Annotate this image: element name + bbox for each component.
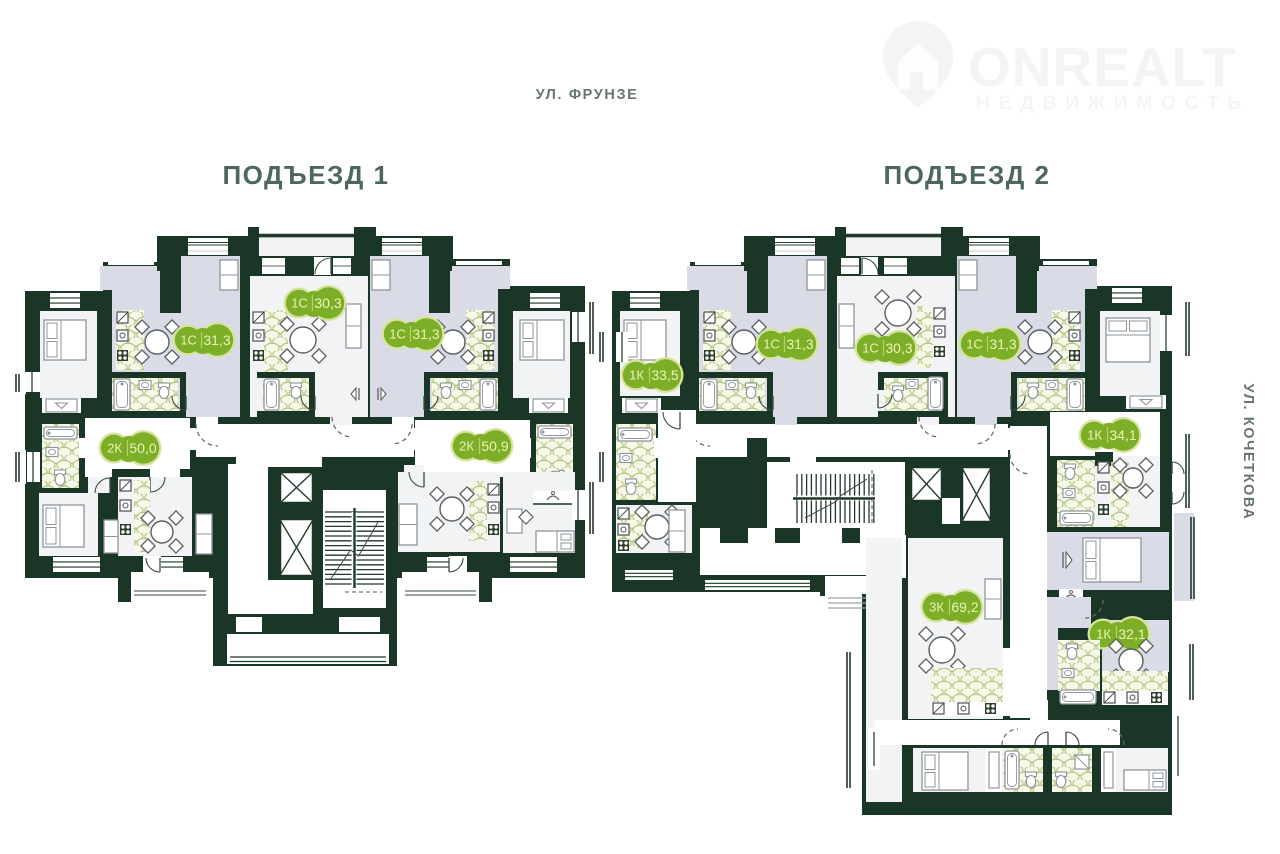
svg-text:3К: 3К: [929, 600, 944, 615]
svg-text:1С: 1С: [966, 337, 983, 352]
svg-text:31,3: 31,3: [412, 326, 439, 342]
svg-text:69,2: 69,2: [951, 599, 978, 615]
svg-text:1С: 1С: [763, 337, 780, 352]
svg-text:34,1: 34,1: [1109, 427, 1136, 443]
svg-text:НЕДВИЖИМОСТЬ: НЕДВИЖИМОСТЬ: [976, 92, 1250, 114]
svg-text:1С: 1С: [180, 333, 197, 348]
svg-text:ПОДЪЕЗД 2: ПОДЪЕЗД 2: [883, 160, 1050, 190]
svg-text:1С: 1С: [291, 296, 308, 311]
svg-text:31,3: 31,3: [203, 332, 230, 348]
svg-text:2К: 2К: [459, 439, 474, 454]
svg-text:ПОДЪЕЗД 1: ПОДЪЕЗД 1: [222, 160, 389, 190]
svg-text:30,3: 30,3: [885, 340, 912, 356]
svg-text:1С: 1С: [389, 327, 406, 342]
svg-text:31,3: 31,3: [989, 336, 1016, 352]
svg-text:50,0: 50,0: [129, 440, 156, 456]
svg-text:УЛ. ФРУНЗЕ: УЛ. ФРУНЗЕ: [536, 87, 639, 103]
svg-text:1К: 1К: [1096, 627, 1111, 642]
svg-text:30,3: 30,3: [314, 295, 341, 311]
svg-text:1К: 1К: [629, 368, 644, 383]
svg-text:УЛ. КОЧЕТКОВА: УЛ. КОЧЕТКОВА: [1240, 384, 1256, 521]
svg-text:1С: 1С: [862, 341, 879, 356]
svg-text:ONREALT: ONREALT: [968, 36, 1237, 98]
svg-text:32,1: 32,1: [1118, 626, 1145, 642]
svg-text:50,9: 50,9: [481, 438, 508, 454]
svg-text:33,5: 33,5: [651, 367, 678, 383]
svg-text:2К: 2К: [107, 441, 122, 456]
svg-text:31,3: 31,3: [786, 336, 813, 352]
svg-text:1К: 1К: [1087, 428, 1102, 443]
